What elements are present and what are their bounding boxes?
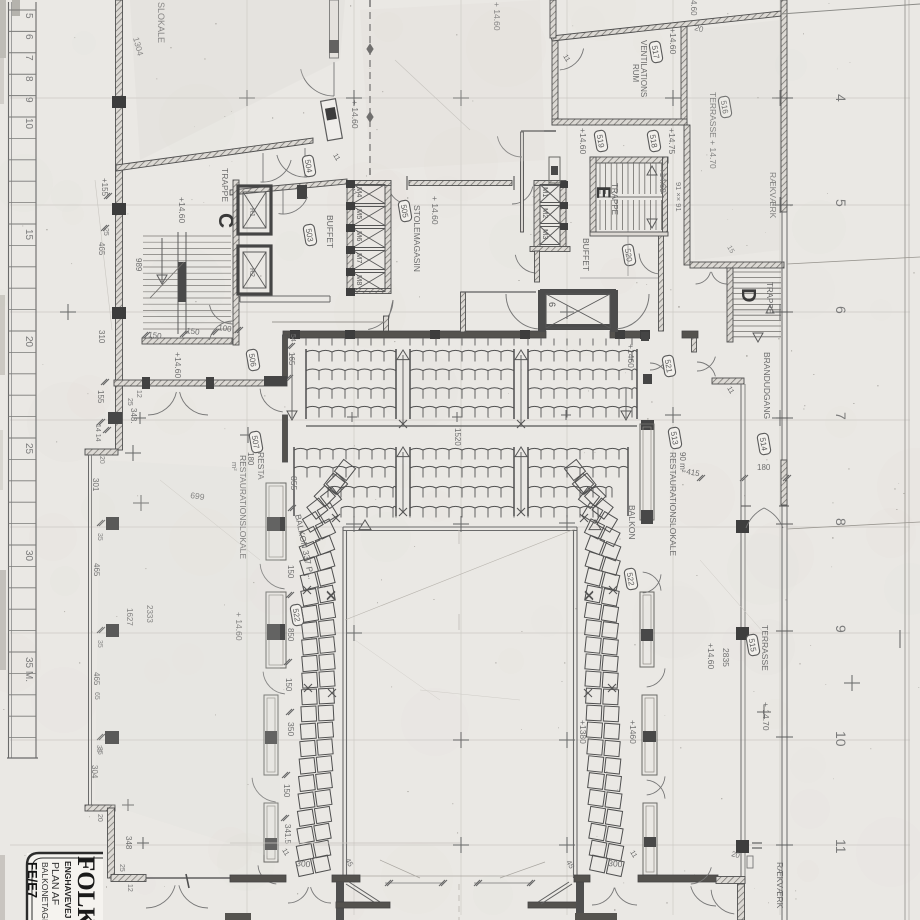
- svg-text:+14.60: +14.60: [578, 128, 588, 155]
- svg-text:TERRASSE: TERRASSE: [760, 625, 770, 671]
- svg-text:30: 30: [23, 550, 34, 562]
- svg-text:E: E: [592, 186, 613, 199]
- svg-text:+14.60: +14.60: [706, 643, 716, 670]
- svg-text:20: 20: [96, 814, 103, 822]
- svg-text:FE/E7: FE/E7: [25, 862, 40, 898]
- svg-text:BALKONETAGE: BALKONETAGE: [40, 862, 50, 920]
- svg-text:10: 10: [833, 731, 849, 747]
- svg-text:R1: R1: [248, 208, 255, 217]
- svg-text:+ 14.60: + 14.60: [430, 196, 440, 225]
- svg-text:9: 9: [23, 97, 34, 103]
- svg-text:91 ×× 91: 91 ×× 91: [674, 182, 683, 212]
- svg-text:25: 25: [102, 228, 109, 236]
- svg-text:11: 11: [833, 839, 849, 854]
- svg-text:855: 855: [289, 476, 299, 490]
- svg-text:150: 150: [286, 565, 295, 579]
- svg-text:M4: M4: [355, 187, 364, 197]
- svg-text:300: 300: [296, 858, 311, 869]
- svg-text:1520: 1520: [453, 428, 462, 446]
- svg-text:M7: M7: [355, 253, 364, 263]
- svg-text:+ 14.60: + 14.60: [350, 100, 360, 129]
- svg-text:341.5: 341.5: [283, 824, 292, 845]
- svg-text:5: 5: [833, 199, 849, 207]
- svg-text:25: 25: [126, 398, 133, 406]
- svg-text:12: 12: [135, 390, 142, 398]
- svg-text:35 M.: 35 M.: [23, 657, 34, 682]
- svg-text:350: 350: [286, 722, 296, 736]
- svg-text:+1460: +1460: [628, 720, 638, 744]
- svg-text:+14.69: +14.69: [658, 168, 667, 193]
- svg-text:D: D: [737, 288, 759, 302]
- svg-text:20: 20: [23, 336, 34, 348]
- svg-text:180: 180: [757, 463, 771, 472]
- svg-text:RUM: RUM: [631, 64, 640, 83]
- svg-text:2835: 2835: [721, 648, 731, 667]
- svg-text:M6: M6: [355, 231, 364, 241]
- svg-text:9: 9: [833, 625, 849, 633]
- svg-text:+14.60: +14.60: [668, 28, 678, 55]
- svg-text:BUFFET: BUFFET: [581, 238, 591, 271]
- svg-text:7: 7: [833, 412, 849, 420]
- svg-text:6: 6: [547, 302, 557, 307]
- svg-text:54: 54: [289, 334, 296, 342]
- svg-text:12: 12: [126, 884, 133, 892]
- svg-text:+155: +155: [100, 178, 109, 197]
- svg-text:15: 15: [23, 229, 34, 241]
- svg-text:300: 300: [608, 858, 623, 869]
- svg-text:8: 8: [23, 76, 34, 82]
- svg-text:4.60: 4.60: [689, 0, 698, 16]
- svg-text:6: 6: [833, 306, 849, 314]
- svg-text:FOLKET: FOLKET: [72, 856, 99, 920]
- svg-text:180: 180: [246, 452, 255, 466]
- svg-text:348.: 348.: [129, 408, 138, 424]
- svg-text:14 14: 14 14: [94, 424, 101, 442]
- svg-text:150: 150: [282, 784, 291, 798]
- svg-text:BRANDUDGANG: BRANDUDGANG: [762, 352, 772, 419]
- svg-text:155: 155: [96, 390, 105, 404]
- svg-text:150: 150: [148, 330, 163, 341]
- svg-text:8: 8: [833, 518, 849, 526]
- svg-text:301: 301: [91, 478, 100, 492]
- svg-text:5: 5: [23, 13, 34, 19]
- svg-text:TRAPPE: TRAPPE: [765, 282, 774, 314]
- svg-text:+1380: +1380: [578, 720, 588, 744]
- svg-text:R2: R2: [248, 268, 255, 277]
- svg-text:STOLEMAGASIN: STOLEMAGASIN: [412, 205, 422, 272]
- svg-text:M5: M5: [355, 209, 364, 219]
- svg-text:6: 6: [23, 34, 34, 40]
- svg-text:465: 465: [97, 242, 106, 256]
- svg-text:M3: M3: [541, 229, 550, 239]
- svg-text:25: 25: [23, 443, 34, 455]
- svg-text:M1: M1: [541, 187, 550, 197]
- svg-text:+14.60: +14.60: [177, 197, 187, 224]
- svg-text:+14.60: +14.60: [173, 352, 183, 379]
- svg-text:165: 165: [287, 352, 296, 366]
- svg-text:150: 150: [284, 678, 293, 692]
- svg-text:ENGHAVEVEJ: ENGHAVEVEJ: [63, 861, 73, 919]
- svg-text:25: 25: [118, 864, 125, 872]
- svg-text:+14.75: +14.75: [667, 128, 677, 155]
- svg-text:BALKON: BALKON: [627, 505, 637, 540]
- svg-text:M2: M2: [541, 208, 550, 218]
- svg-text:4: 4: [833, 94, 849, 102]
- svg-text:850: 850: [286, 628, 295, 642]
- svg-text:RÆKVÆRK: RÆKVÆRK: [775, 862, 785, 909]
- svg-text:310: 310: [97, 330, 106, 344]
- svg-text:BUFFET: BUFFET: [325, 215, 335, 248]
- svg-text:989: 989: [134, 258, 143, 272]
- svg-text:10: 10: [23, 118, 34, 130]
- svg-text:100: 100: [218, 323, 233, 334]
- svg-text:90 m²: 90 m²: [678, 452, 687, 473]
- svg-text:348: 348: [124, 836, 133, 850]
- svg-text:TRAPPE: TRAPPE: [220, 168, 230, 202]
- svg-text:+ 14.70: + 14.70: [761, 702, 771, 731]
- svg-text:7: 7: [23, 55, 34, 61]
- svg-text:M8: M8: [355, 275, 364, 285]
- svg-text:RESTAURATIONSLOKALE: RESTAURATIONSLOKALE: [668, 452, 678, 556]
- svg-text:+1460: +1460: [626, 344, 636, 368]
